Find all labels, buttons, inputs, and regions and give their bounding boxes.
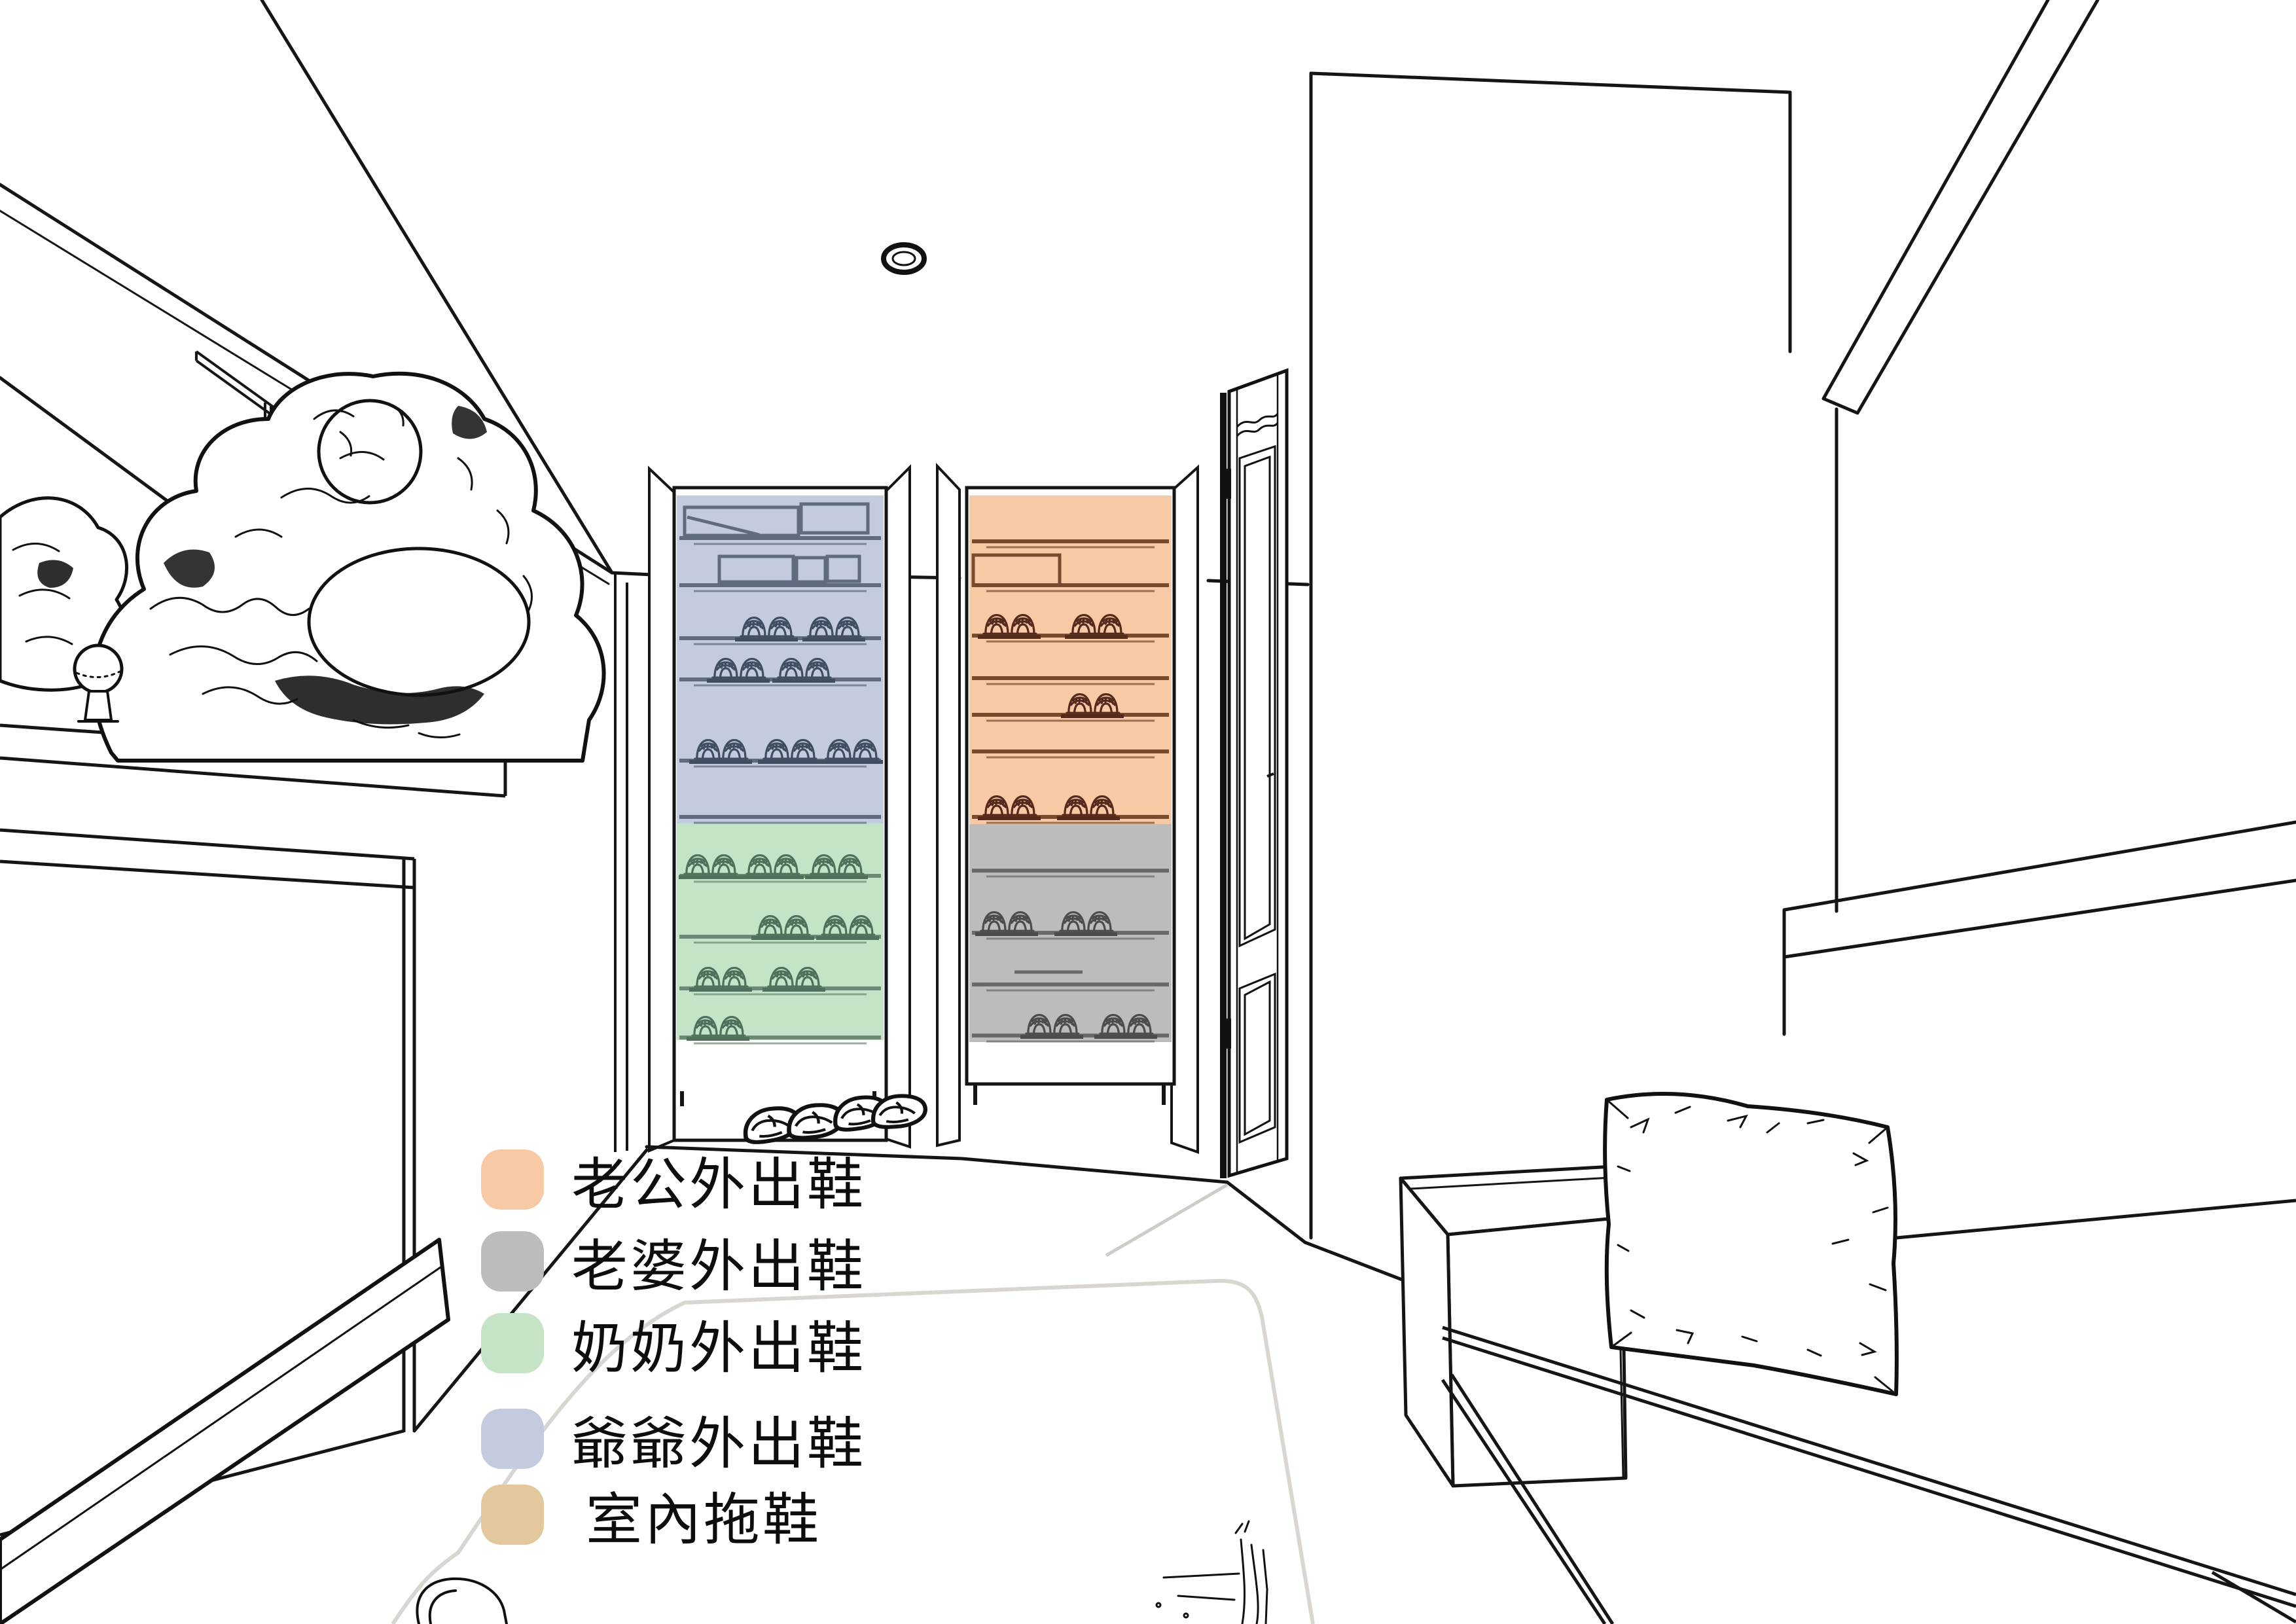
cabinet-sections-layer xyxy=(677,496,884,1040)
statue-head xyxy=(319,401,421,503)
buddha-statue-sketch xyxy=(0,374,604,761)
sloped-bulkhead xyxy=(1823,0,2098,413)
floor-lines xyxy=(414,1147,1407,1431)
entryway-rendering-page: 老公外出鞋 老婆外出鞋 奶奶外出鞋 爺爺外出鞋 室內拖鞋 xyxy=(0,0,2296,1624)
plant-sketch-marks xyxy=(1157,1521,1267,1624)
cabinet-sections-layer xyxy=(969,496,1172,1042)
door-hinge xyxy=(1225,1019,1231,1049)
door-swing-sketch-line xyxy=(1106,1185,1227,1255)
scene-rendering xyxy=(0,0,2296,1624)
statue-belly xyxy=(309,549,529,695)
cabinet-legs xyxy=(975,1084,1164,1105)
floor-baseboard-under-cabinets xyxy=(647,1147,1305,1242)
wall-column-by-cabinet xyxy=(615,574,627,1152)
decor-sphere xyxy=(75,645,122,693)
left-shoe-cabinet xyxy=(649,467,910,1151)
lower-cabinet-counter xyxy=(0,830,414,888)
throw-pillow xyxy=(1605,1094,1897,1394)
stool-sketch xyxy=(417,1579,507,1624)
floor-baseboard-left xyxy=(414,1150,647,1431)
floor-corner-right xyxy=(1305,1242,1407,1282)
right-shoe-cabinet xyxy=(937,466,1198,1152)
rug-outline-sketch xyxy=(393,1281,1313,1624)
armrest-front xyxy=(1448,1218,1626,1486)
sofa-back-wall-trim xyxy=(1784,822,2296,1034)
bench-board xyxy=(0,1240,448,1624)
cabinet-door-open-left xyxy=(937,466,960,1146)
pillow-body xyxy=(1605,1094,1897,1394)
right-column-top-edge xyxy=(1311,73,1790,92)
cabinet-section-husband-outdoor-shoes xyxy=(969,496,1172,824)
left-window-wall-edge xyxy=(0,378,191,518)
ceiling-recessed-light xyxy=(884,245,924,272)
cabinet-door-open-left xyxy=(649,469,674,1151)
door-hinge xyxy=(1225,469,1231,499)
cabinet-door-open-right xyxy=(886,467,910,1147)
